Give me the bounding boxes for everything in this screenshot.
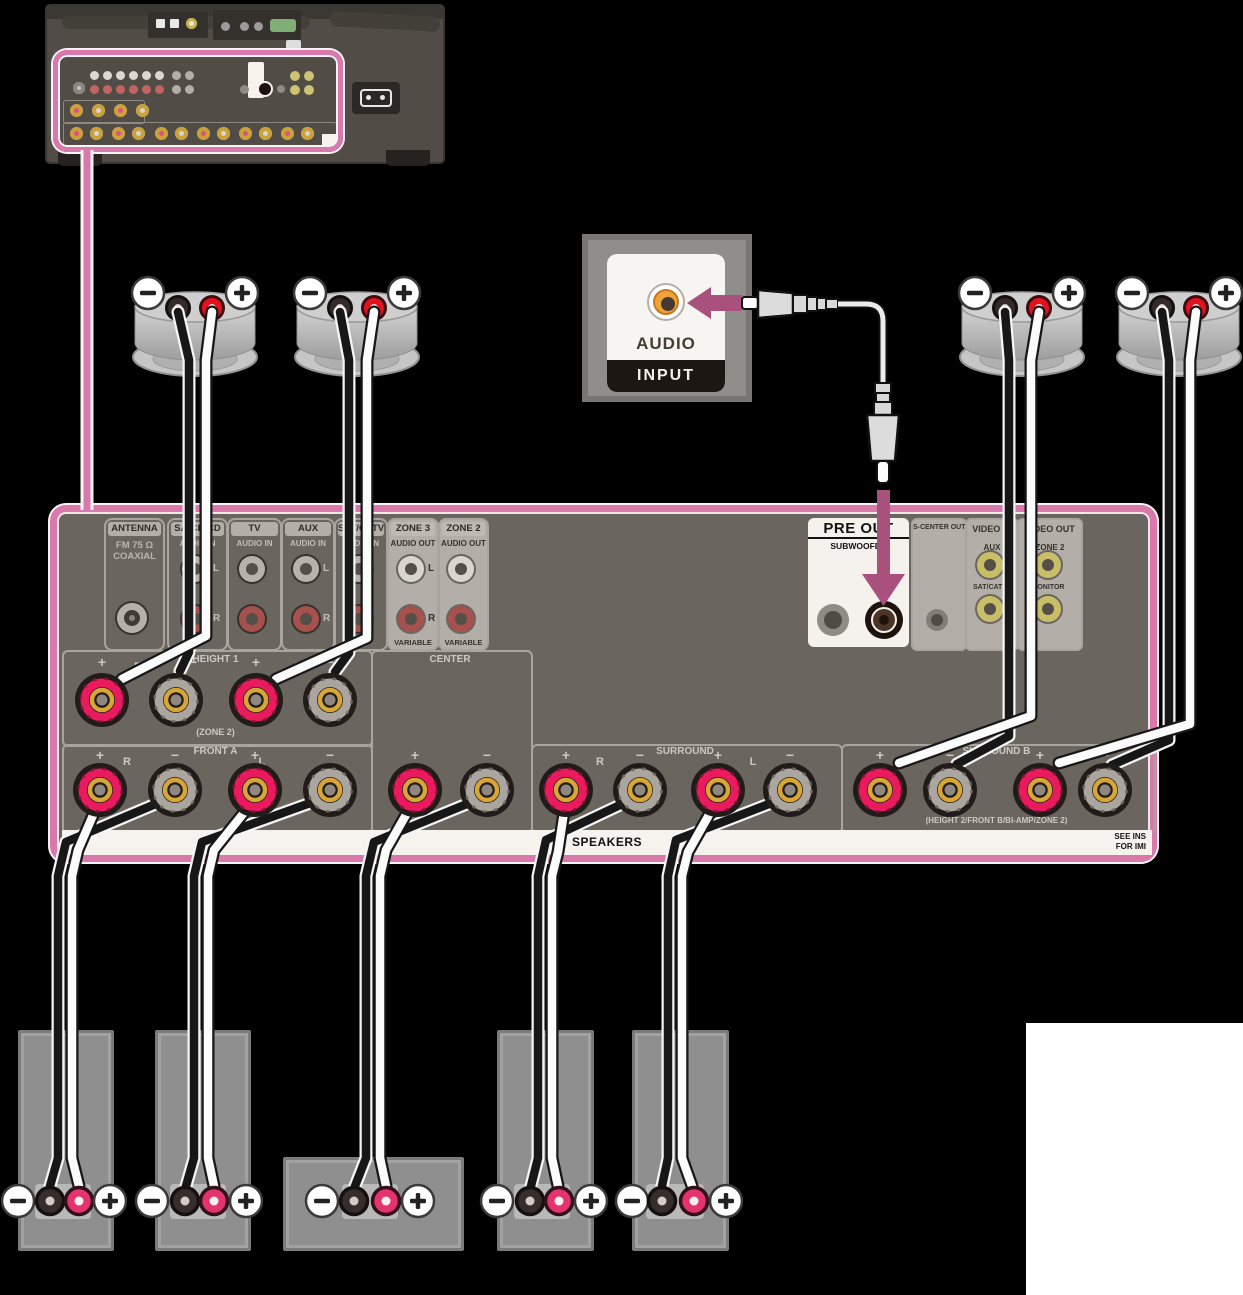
minus-icon [616,1185,648,1217]
binding-post-gray [303,763,357,817]
binding-post-red [1013,763,1067,817]
speaker-terminal-black [341,1188,368,1215]
binding-post-gray [613,763,667,817]
speaker-terminal-red [201,1188,228,1215]
binding-post-gray [763,763,817,817]
binding-post-red [691,763,745,817]
plus-icon [230,1185,262,1217]
height-speaker-4 [1116,277,1242,376]
front-right-wires [50,797,172,1186]
speaker-terminal-black [172,1188,199,1215]
binding-post-red [229,673,283,727]
plus-icon [402,1185,434,1217]
surround-b2-wires [1059,312,1196,765]
speaker-terminal-black [37,1188,64,1215]
minus-icon [136,1185,168,1217]
height-speaker-3 [959,277,1085,376]
arrow-down-icon [862,490,905,606]
speaker-connection-diagram: AUDIO INPUT ANTENNA FM 75 Ω COAXIAL SA-C… [0,0,1243,1295]
surround-b1-wires [899,312,1039,764]
diagram-overlay [0,0,1243,1295]
plus-icon [94,1185,126,1217]
binding-post-red [539,763,593,817]
plus-icon [575,1185,607,1217]
binding-post-gray [923,763,977,817]
speaker-terminal-red [681,1188,708,1215]
height-speaker-2 [294,277,420,376]
binding-post-red [75,673,129,727]
binding-post-red [73,763,127,817]
front-left-wires [186,797,327,1186]
binding-post-gray [303,673,357,727]
binding-post-gray [149,673,203,727]
speaker-terminal-red [66,1188,93,1215]
binding-post-red [388,763,442,817]
binding-post-gray [1078,763,1132,817]
minus-icon [481,1185,513,1217]
binding-post-red [228,763,282,817]
minus-icon [306,1185,338,1217]
speaker-terminal-black [517,1188,544,1215]
speaker-terminal-red [373,1188,400,1215]
binding-post-gray [148,763,202,817]
speaker-terminal-red [546,1188,573,1215]
arrow-left-icon [687,287,742,319]
speaker-terminal-black [649,1188,676,1215]
plus-icon [710,1185,742,1217]
center-wires [355,797,484,1186]
surround-left-wires [662,797,787,1186]
minus-icon [2,1185,34,1217]
binding-post-red [853,763,907,817]
binding-post-gray [460,763,514,817]
surround-right-wires [531,797,637,1186]
subwoofer-cable [687,287,905,606]
